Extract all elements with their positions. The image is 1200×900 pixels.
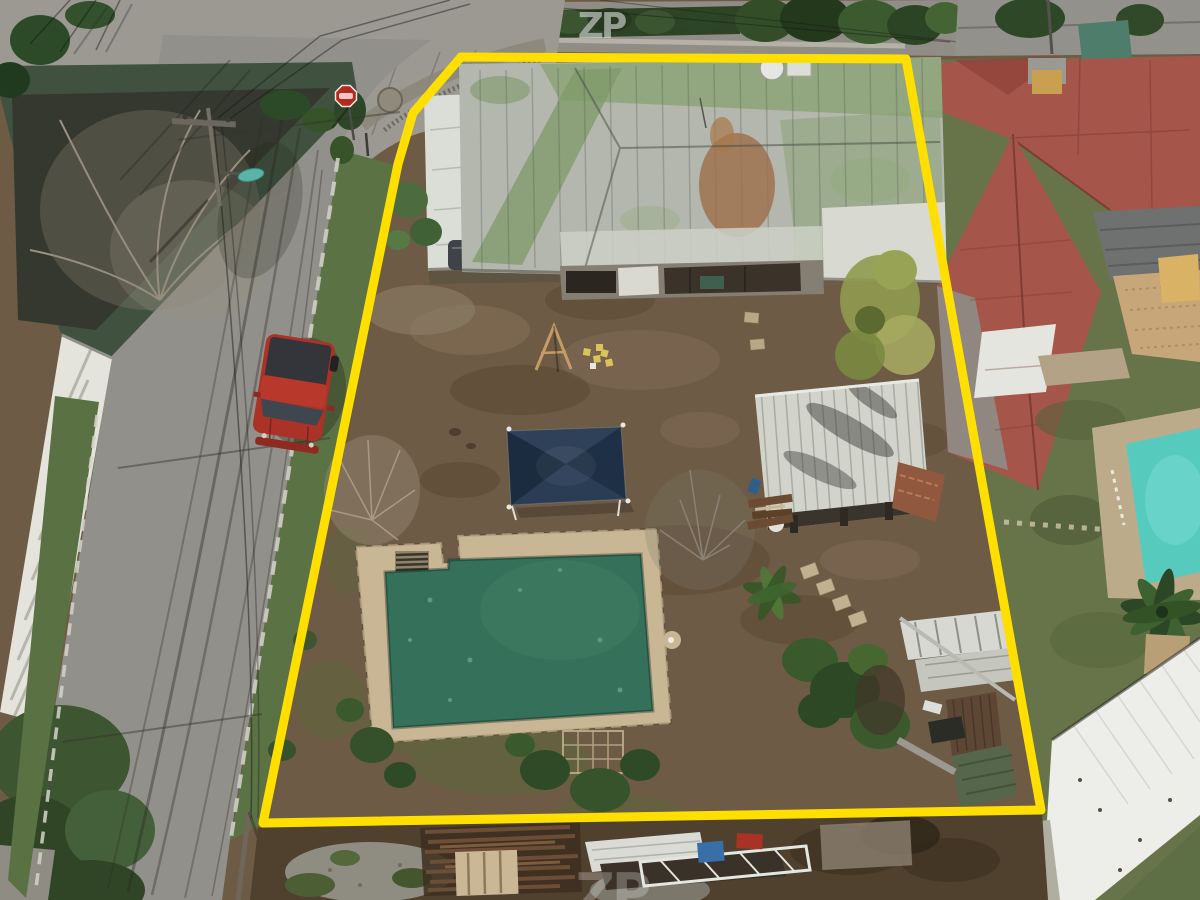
blue-item bbox=[697, 841, 725, 863]
yellow-wall bbox=[1158, 254, 1200, 303]
bare-tree-center bbox=[645, 470, 755, 590]
watermark-top: ZP bbox=[578, 6, 626, 47]
main-roof bbox=[459, 56, 947, 286]
house-wall bbox=[560, 260, 824, 300]
swimming-pool bbox=[356, 529, 681, 743]
medallion bbox=[378, 88, 402, 112]
neighbor-pool bbox=[1092, 408, 1200, 600]
window-dark bbox=[566, 271, 616, 293]
aerial-property-photo: ZP ZP bbox=[0, 0, 1200, 900]
pallet bbox=[455, 850, 518, 896]
rust-patch bbox=[699, 133, 775, 237]
white-door bbox=[618, 266, 659, 296]
teal-roof bbox=[1078, 20, 1132, 60]
watermark-bottom: ZP bbox=[576, 862, 650, 900]
lumber-stack bbox=[420, 822, 582, 896]
red-item bbox=[736, 833, 763, 849]
